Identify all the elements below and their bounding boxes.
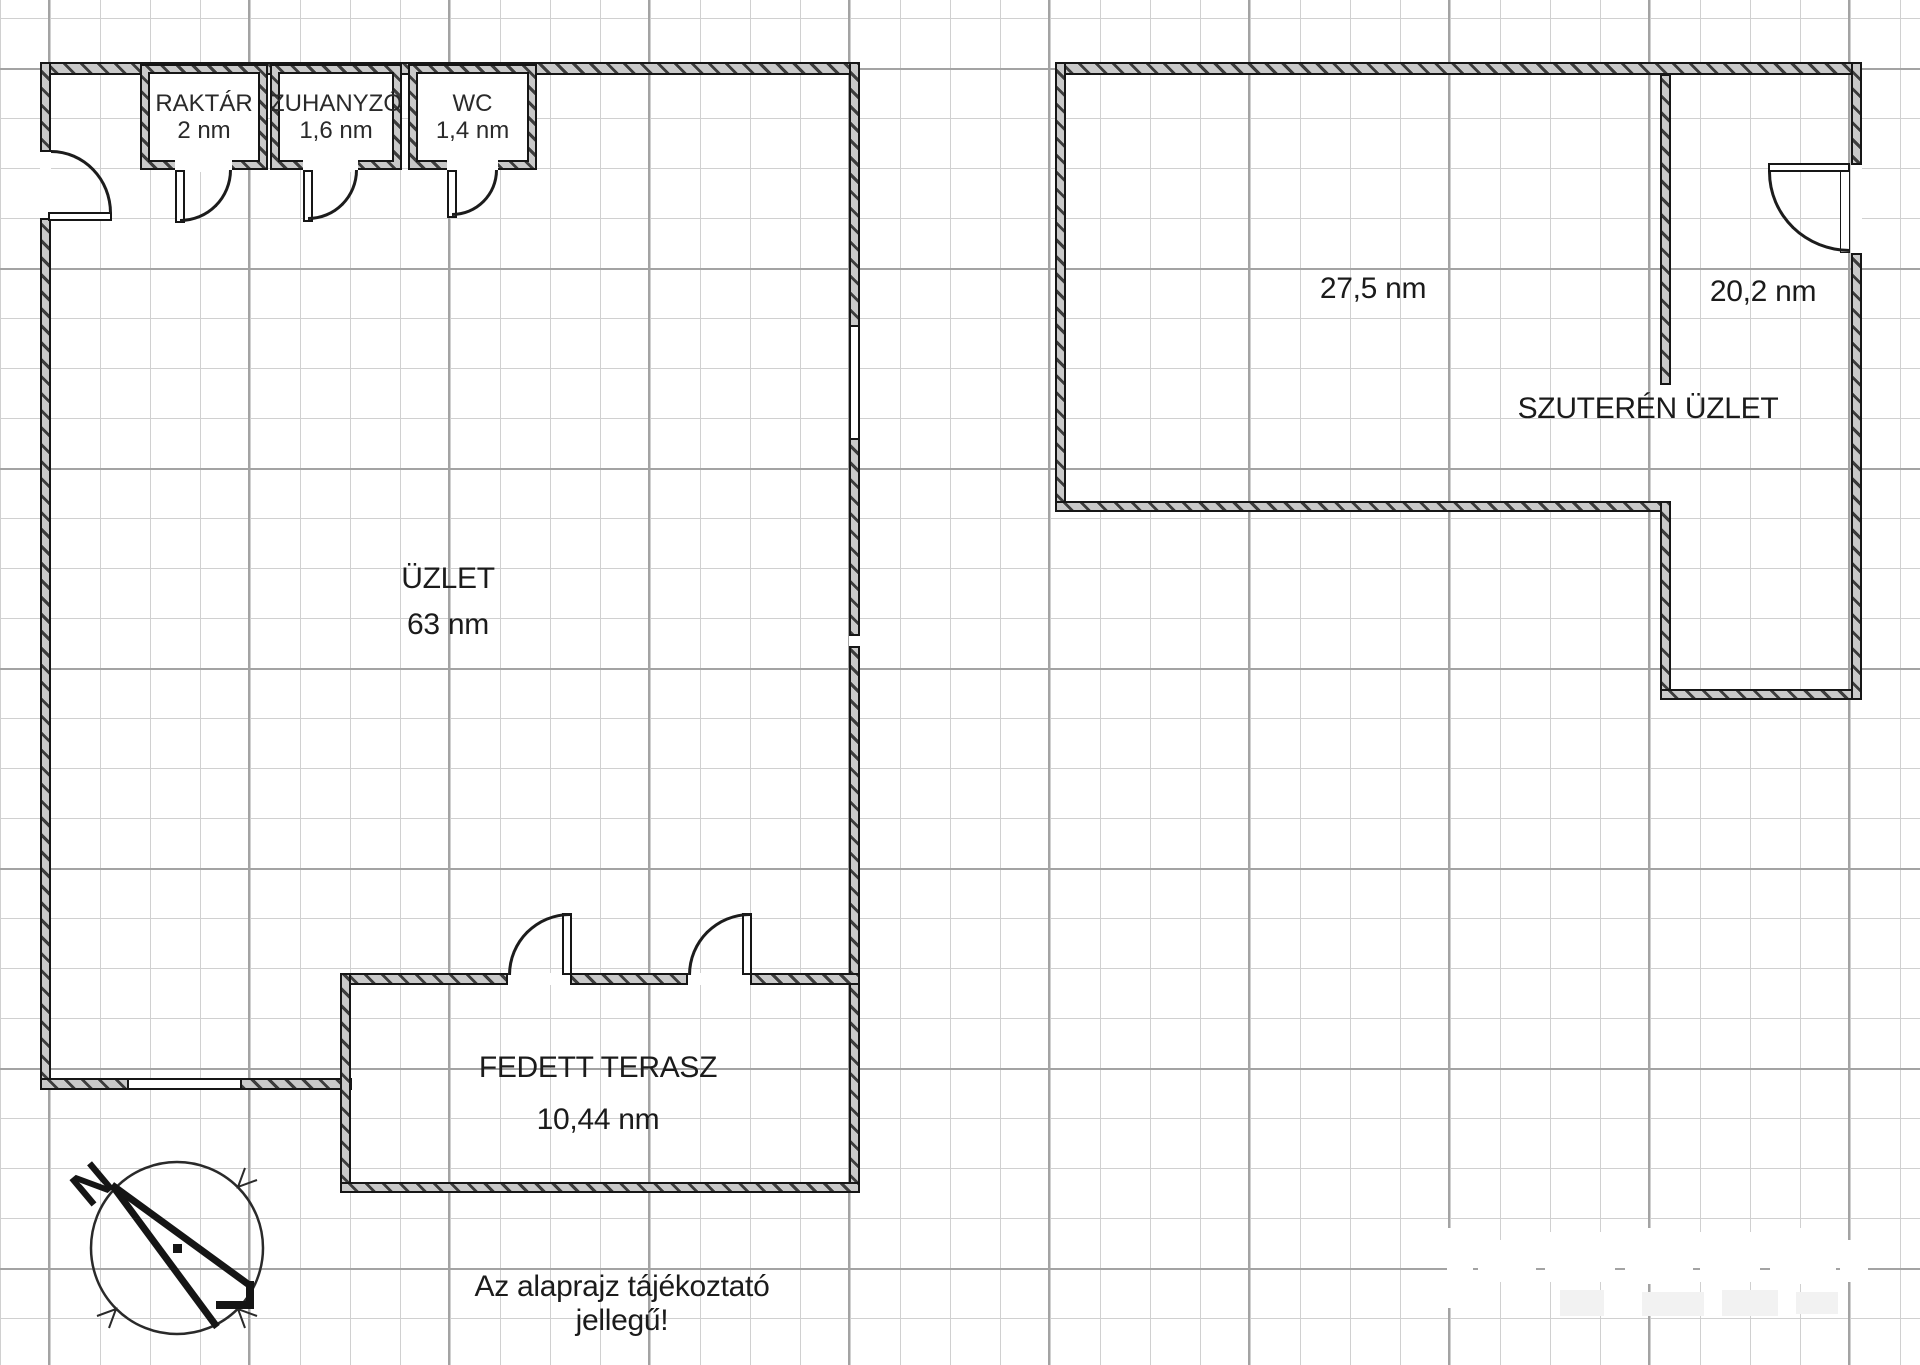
- window-right-wall: [849, 325, 860, 440]
- wall-terasz-left: [340, 973, 351, 1193]
- wall-szuteren-step: [1660, 501, 1671, 700]
- watermark-block: [1770, 1228, 1836, 1284]
- door-leaf-entrance: [48, 212, 112, 221]
- watermark-block: [1642, 1292, 1704, 1316]
- room-area-wc: 1,4 nm: [436, 117, 509, 144]
- door-arc-szuteren: [1768, 172, 1850, 252]
- door-arc-wc: [452, 170, 498, 216]
- wall-szuteren-left: [1055, 62, 1066, 512]
- room-label-uzlet: ÜZLET: [348, 556, 548, 602]
- watermark-block: [1700, 1232, 1760, 1282]
- north-arrow-icon: N: [55, 1140, 300, 1365]
- door-arc-entrance: [51, 150, 112, 213]
- wall-terasz-top: [340, 973, 860, 985]
- door-leaf-szuteren: [1768, 163, 1850, 172]
- watermark-block: [1796, 1292, 1838, 1314]
- room-raktar: RAKTÁR 2 nm: [148, 72, 260, 162]
- wall-szuteren-bottom-2: [1660, 689, 1862, 700]
- wall-szuteren-right: [1851, 62, 1862, 700]
- watermark-block: [1722, 1290, 1778, 1316]
- watermark-block: [1625, 1228, 1693, 1284]
- watermark-block: [1840, 1240, 1868, 1282]
- room-label-zuhanyzo: ZUHANYZÓ: [270, 90, 402, 117]
- room-terasz-label: FEDETT TERASZ 10,44 nm: [418, 1042, 778, 1146]
- room-label-terasz: FEDETT TERASZ: [418, 1042, 778, 1094]
- wall-uzlet-right: [849, 62, 860, 1193]
- plan-note: Az alaprajz tájékoztató jellegű!: [437, 1270, 807, 1338]
- room-area-zuhanyzo: 1,6 nm: [299, 117, 372, 144]
- room-label-wc: WC: [453, 90, 493, 117]
- room-area-27-5: 27,5 nm: [1283, 272, 1463, 306]
- wall-szuteren-partition: [1660, 74, 1671, 385]
- door-arc-zuhanyzo: [308, 170, 358, 220]
- door-arc-terasz-1: [508, 913, 570, 975]
- door-arc-terasz-2: [688, 913, 750, 975]
- watermark-block: [1447, 1228, 1473, 1308]
- door-arc-raktar: [180, 170, 232, 222]
- wall-szuteren-bottom-1: [1055, 501, 1671, 512]
- wall-terasz-bottom: [340, 1182, 860, 1193]
- room-area-20-2: 20,2 nm: [1673, 275, 1853, 309]
- compass-north-label: N: [60, 1151, 124, 1217]
- room-area-raktar: 2 nm: [177, 117, 230, 144]
- door-opening-entrance-left: [40, 150, 51, 220]
- window-bottom-wall: [127, 1078, 242, 1090]
- floor-plan: RAKTÁR 2 nm ZUHANYZÓ 1,6 nm WC 1,4 nm ÜZ…: [0, 0, 1920, 1365]
- watermark-block: [1560, 1290, 1604, 1316]
- room-zuhanyzo: ZUHANYZÓ 1,6 nm: [278, 72, 394, 162]
- door-opening-szuteren: [1851, 163, 1862, 255]
- room-wc: WC 1,4 nm: [416, 72, 529, 162]
- wall-joint-right: [849, 634, 860, 648]
- watermark-block: [1545, 1232, 1615, 1282]
- room-label-raktar: RAKTÁR: [155, 90, 252, 117]
- room-area-uzlet: 63 nm: [348, 602, 548, 648]
- room-uzlet-label: ÜZLET 63 nm: [348, 556, 548, 648]
- room-label-szuteren-uzlet: SZUTERÉN ÜZLET: [1478, 392, 1818, 426]
- watermark-block: [1478, 1240, 1536, 1282]
- room-area-terasz: 10,44 nm: [418, 1094, 778, 1146]
- wall-szuteren-top: [1055, 62, 1862, 75]
